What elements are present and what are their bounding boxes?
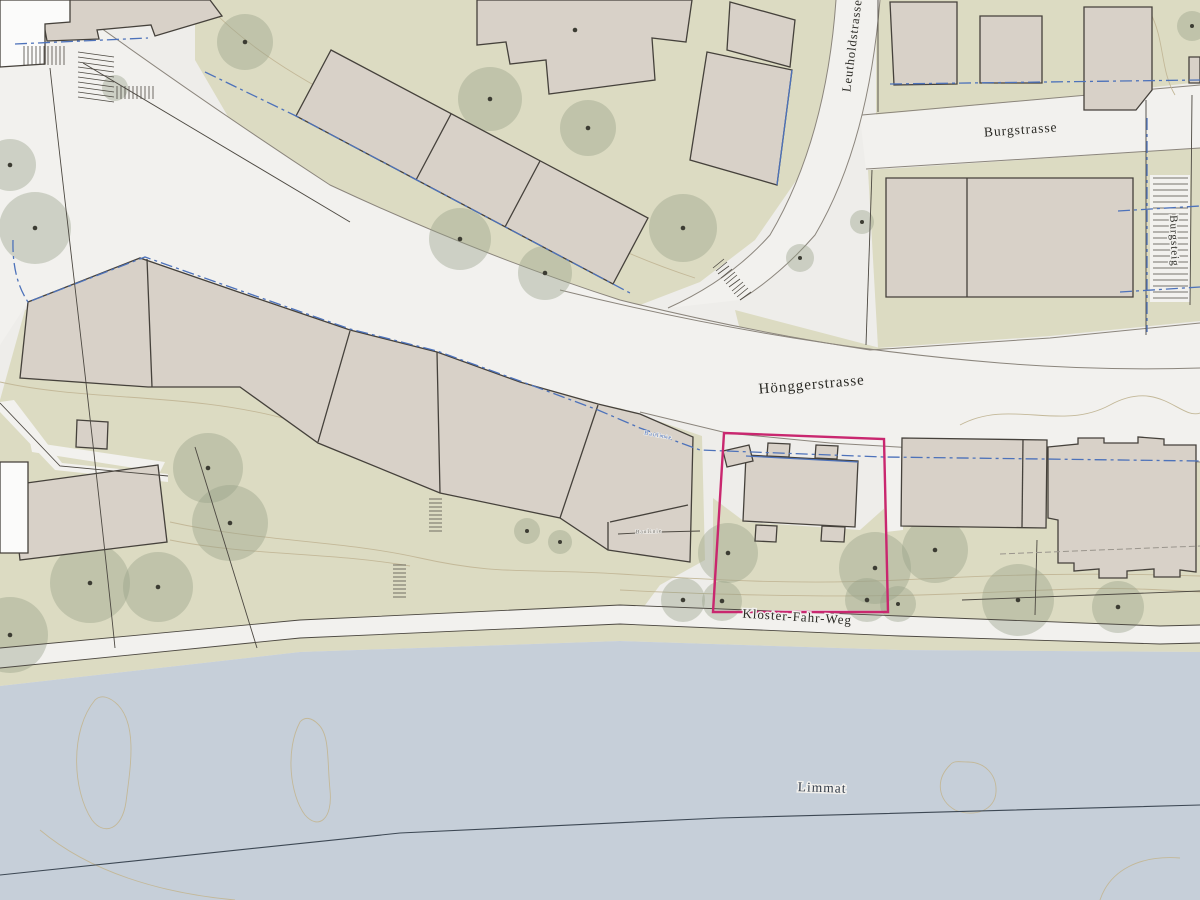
tree-trunk-dot <box>586 126 591 131</box>
street-label-burgsteig: Burgsteig <box>1167 215 1181 267</box>
tree-trunk-dot <box>681 598 686 603</box>
building-annex <box>755 525 777 542</box>
building <box>980 16 1042 83</box>
building <box>890 2 957 85</box>
tree-trunk-dot <box>243 40 248 45</box>
tree-trunk-dot <box>1116 605 1121 610</box>
tree-trunk-dot <box>525 529 529 533</box>
tree-trunk-dot <box>860 220 864 224</box>
tree-trunk-dot <box>543 271 548 276</box>
tree-trunk-dot <box>458 237 463 242</box>
building <box>886 178 1133 297</box>
tree-trunk-dot <box>8 163 13 168</box>
site-plan-map: Hönggerstrasse Burgstrasse Leutholdstras… <box>0 0 1200 900</box>
building <box>690 52 792 185</box>
building-annex <box>767 443 790 457</box>
tree-trunk-dot <box>488 97 493 102</box>
tree-trunk-dot <box>156 585 161 590</box>
building <box>901 438 1047 528</box>
tree-trunk-dot <box>933 548 938 553</box>
building <box>1189 57 1200 83</box>
tree-trunk-dot <box>8 633 13 638</box>
tree-trunk-dot <box>33 226 38 231</box>
river-limmat <box>0 641 1200 900</box>
small-parcel-label: Baulinie <box>636 529 663 536</box>
driveway <box>885 440 903 532</box>
tree-trunk-dot <box>573 28 578 33</box>
building-burgstrasse-south <box>886 178 1133 297</box>
tree-trunk-dot <box>865 598 870 603</box>
tree-trunk-dot <box>558 540 562 544</box>
tree-trunk-dot <box>798 256 802 260</box>
tree-trunk-dot <box>896 602 900 606</box>
tree-trunk-dot <box>726 551 731 556</box>
river-label-limmat: Limmat <box>798 779 847 796</box>
building-right-mid <box>901 438 1047 528</box>
building <box>743 455 858 527</box>
tree-trunk-dot <box>720 599 725 604</box>
building-annex <box>815 445 838 459</box>
tree-trunk-dot <box>206 466 211 471</box>
tree-trunk-dot <box>681 226 686 231</box>
building <box>1084 7 1152 110</box>
building-annex <box>821 526 845 542</box>
tree-trunk-dot <box>1190 24 1194 28</box>
tree-trunk-dot <box>873 566 878 571</box>
building-white <box>0 462 28 553</box>
tree-icon <box>102 75 128 101</box>
building-villa <box>1048 437 1196 578</box>
tree-trunk-dot <box>228 521 233 526</box>
tree-trunk-dot <box>88 581 93 586</box>
tree-trunk-dot <box>1016 598 1021 603</box>
